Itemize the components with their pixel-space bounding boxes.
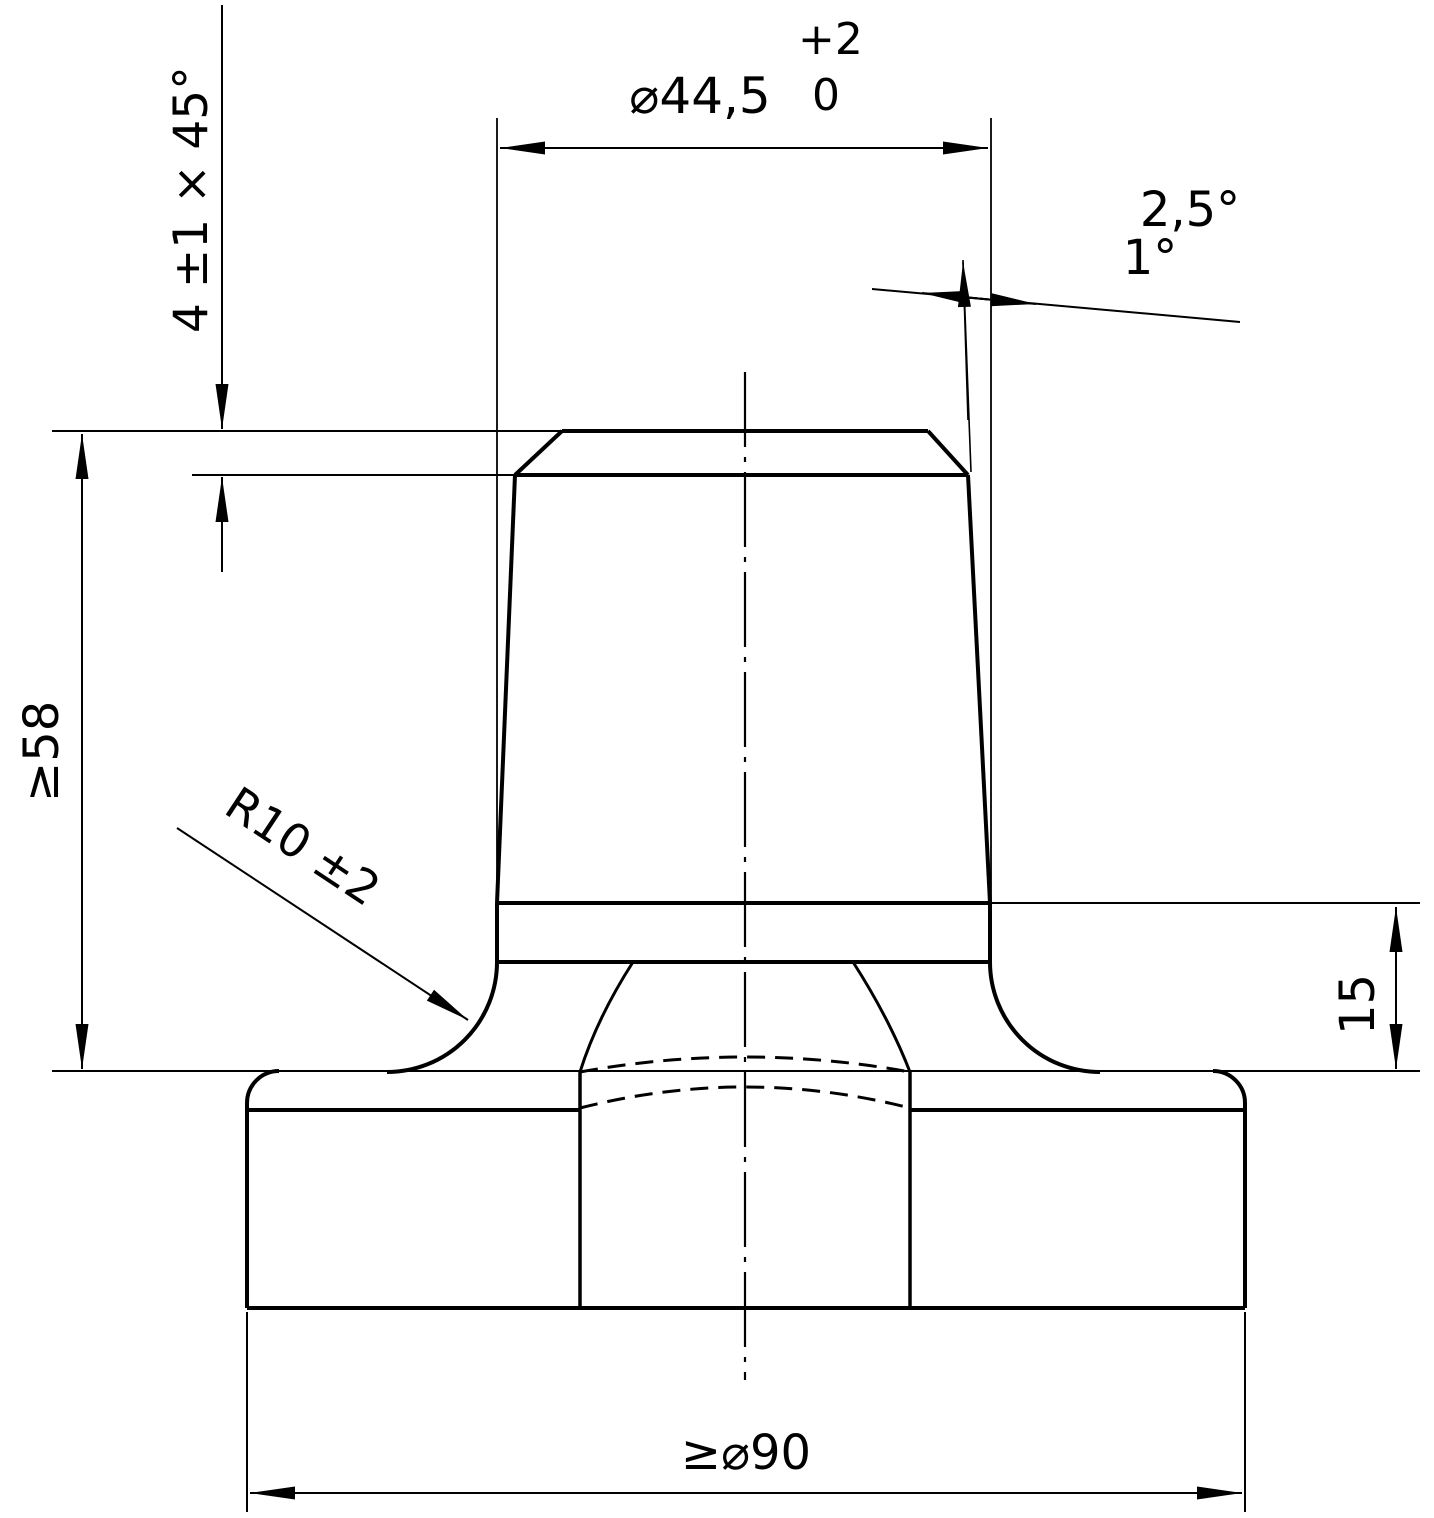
left-taper-edge xyxy=(497,475,515,903)
top-diameter-tolerance-plus: +2 xyxy=(798,14,863,65)
dimensioned-part-drawing: ⌀44,5 +2 0 4 ±1 × 45° 2,5° 1° ≥58 R10 ±2 xyxy=(0,0,1434,1518)
taper-reference-arrow xyxy=(963,262,968,420)
right-fillet-curve xyxy=(990,962,1100,1072)
overall-height-value: ≥58 xyxy=(14,701,70,802)
collar-height-value: 15 xyxy=(1330,974,1386,1035)
base-top-left-corner xyxy=(247,1071,279,1103)
dimension-overall-height: ≥58 xyxy=(14,434,1420,1071)
top-diameter-value: ⌀44,5 xyxy=(629,67,770,125)
technical-drawing-page: ⌀44,5 +2 0 4 ±1 × 45° 2,5° 1° ≥58 R10 ±2 xyxy=(0,0,1434,1518)
dimension-fillet-radius: R10 ±2 xyxy=(177,776,468,1020)
dimension-taper-angle: 2,5° 1° xyxy=(872,182,1240,472)
taper-angle-min: 1° xyxy=(1123,230,1178,286)
top-diameter-tolerance-zero: 0 xyxy=(812,70,840,121)
right-taper-edge xyxy=(968,475,990,903)
right-chamfer-edge xyxy=(928,431,968,475)
left-chamfer-edge xyxy=(515,431,562,475)
base-top-right-corner xyxy=(1213,1071,1245,1103)
left-inner-flare-curve xyxy=(580,962,633,1072)
dimension-chamfer: 4 ±1 × 45° xyxy=(52,5,562,572)
right-inner-flare-curve xyxy=(853,962,910,1072)
base-diameter-value: ≥⌀90 xyxy=(681,1425,811,1481)
chamfer-value: 4 ±1 × 45° xyxy=(164,66,219,333)
dimension-collar-height: 15 xyxy=(990,903,1420,1069)
fillet-radius-value: R10 ±2 xyxy=(216,776,390,916)
